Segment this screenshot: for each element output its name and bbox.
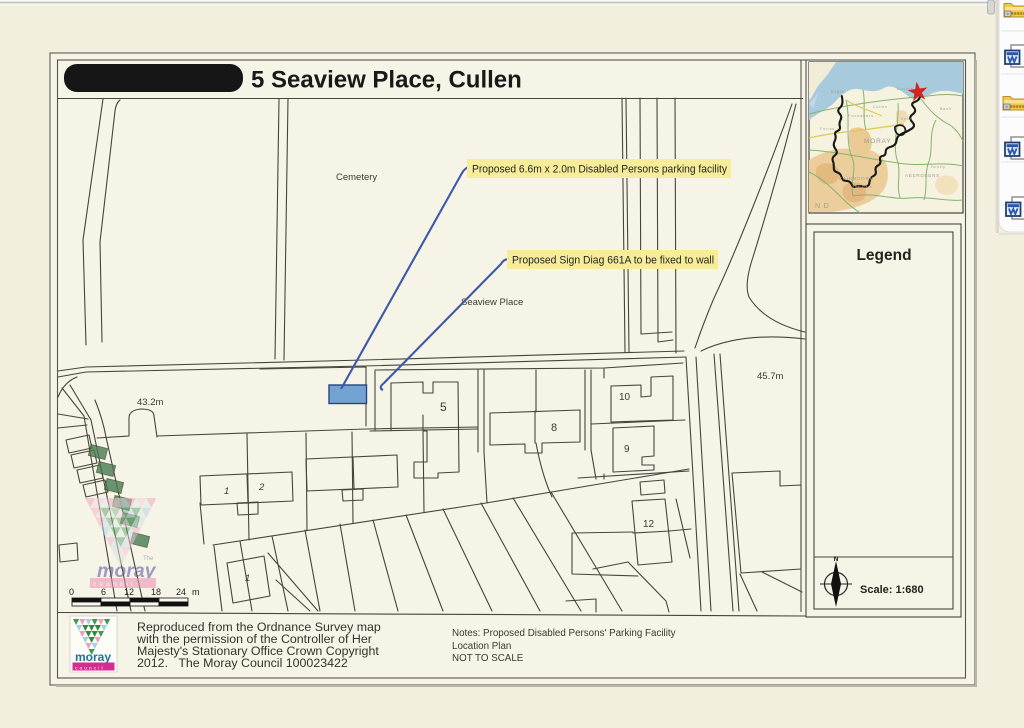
svg-text:MORAY: MORAY — [864, 138, 891, 145]
svg-text:Location Plan: Location Plan — [452, 641, 511, 652]
svg-text:1: 1 — [245, 573, 250, 584]
svg-text:ABERDEENS: ABERDEENS — [905, 173, 940, 178]
svg-text:moray: moray — [75, 650, 111, 664]
svg-text:m: m — [192, 587, 200, 597]
svg-text:24: 24 — [176, 587, 186, 597]
svg-text:Banff: Banff — [940, 107, 952, 111]
svg-text:Keith: Keith — [901, 117, 913, 121]
svg-text:Cullen: Cullen — [873, 105, 888, 109]
svg-text:The Park: The Park — [852, 185, 873, 189]
svg-text:12: 12 — [124, 587, 134, 597]
svg-text:5 Seaview Place, Cullen: 5 Seaview Place, Cullen — [251, 67, 522, 94]
svg-text:10: 10 — [619, 392, 631, 403]
svg-text:NOT TO SCALE: NOT TO SCALE — [452, 653, 524, 664]
svg-text:Proposed Sign Diag 661A to be: Proposed Sign Diag 661A to be fixed to w… — [512, 255, 714, 267]
svg-text:1: 1 — [224, 486, 229, 497]
svg-text:CAIRNGORM: CAIRNGORM — [839, 176, 874, 181]
svg-text:Proposed 6.6m x 2.0m Disabled: Proposed 6.6m x 2.0m Disabled Persons pa… — [472, 164, 727, 176]
svg-text:N: N — [834, 556, 839, 563]
svg-text:43.2m: 43.2m — [137, 397, 163, 408]
svg-text:Huntly: Huntly — [931, 165, 946, 169]
svg-text:18: 18 — [151, 587, 161, 597]
svg-text:5: 5 — [440, 400, 447, 414]
svg-text:Scale: 1:680: Scale: 1:680 — [860, 584, 924, 596]
svg-text:Seaview Place: Seaview Place — [461, 297, 523, 308]
svg-text:2: 2 — [258, 482, 265, 493]
svg-text:0: 0 — [69, 587, 74, 597]
svg-text:Legend: Legend — [856, 247, 911, 264]
svg-text:Notes: Proposed Disabled Perso: Notes: Proposed Disabled Persons' Parkin… — [452, 628, 676, 639]
svg-text:N D: N D — [815, 203, 829, 210]
svg-text:12: 12 — [643, 519, 655, 530]
svg-text:Cemetery: Cemetery — [336, 172, 377, 183]
svg-text:6: 6 — [101, 587, 106, 597]
svg-text:Fochabers: Fochabers — [848, 113, 874, 118]
svg-text:2012. The Moray Council 1000: 2012. The Moray Council 100023422 — [137, 656, 348, 670]
svg-text:45.7m: 45.7m — [757, 371, 783, 382]
svg-text:council: council — [75, 666, 105, 672]
svg-text:Elgin: Elgin — [831, 89, 845, 94]
svg-text:8: 8 — [551, 422, 557, 434]
svg-text:Forres: Forres — [820, 127, 835, 131]
svg-text:9: 9 — [624, 444, 630, 455]
